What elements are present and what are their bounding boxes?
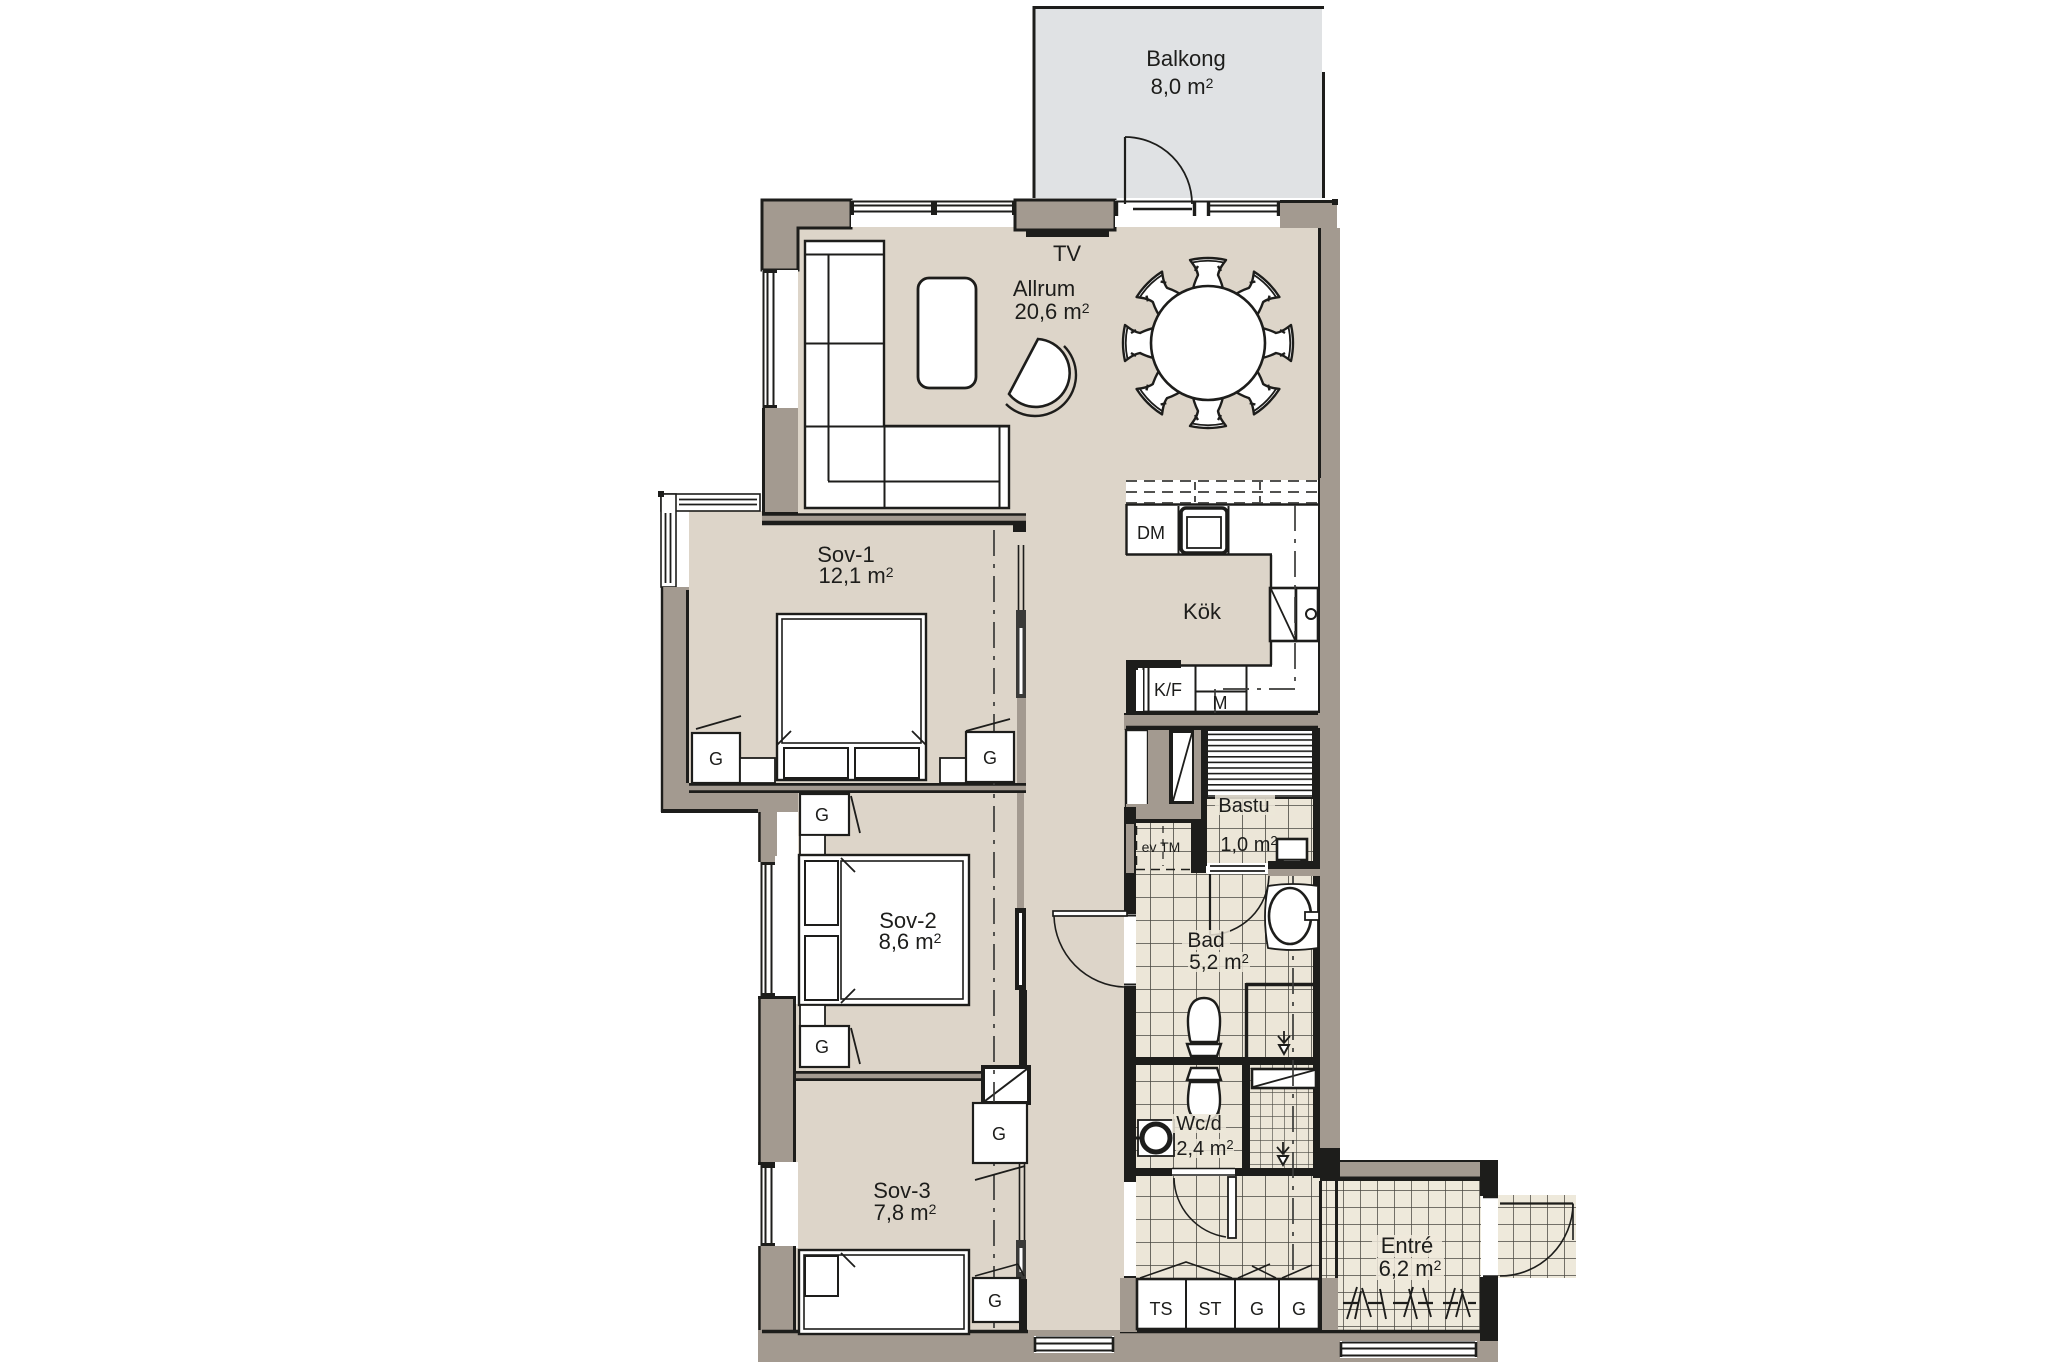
svg-text:G: G xyxy=(815,805,829,825)
svg-text:TV: TV xyxy=(1053,241,1081,266)
svg-text:DM: DM xyxy=(1137,523,1165,543)
svg-text:5,2 m2: 5,2 m2 xyxy=(1189,951,1249,974)
svg-text:Bastu: Bastu xyxy=(1218,795,1269,817)
svg-text:8,6 m2: 8,6 m2 xyxy=(879,929,942,954)
svg-text:6,2 m2: 6,2 m2 xyxy=(1379,1256,1442,1281)
svg-text:G: G xyxy=(988,1291,1002,1311)
svg-text:7,8 m2: 7,8 m2 xyxy=(874,1200,937,1225)
svg-text:Kök: Kök xyxy=(1183,599,1222,624)
svg-text:12,1 m2: 12,1 m2 xyxy=(818,563,893,588)
svg-text:8,0 m2: 8,0 m2 xyxy=(1151,74,1214,99)
svg-text:M: M xyxy=(1213,693,1228,713)
svg-text:ev TM: ev TM xyxy=(1142,839,1181,855)
svg-text:G: G xyxy=(992,1124,1006,1144)
svg-text:ST: ST xyxy=(1198,1299,1221,1319)
svg-text:G: G xyxy=(1250,1299,1264,1319)
svg-text:K/F: K/F xyxy=(1154,680,1182,700)
svg-text:G: G xyxy=(815,1037,829,1057)
svg-text:2,4 m2: 2,4 m2 xyxy=(1176,1137,1233,1160)
svg-text:1,0 m2: 1,0 m2 xyxy=(1220,833,1277,856)
svg-text:20,6 m2: 20,6 m2 xyxy=(1014,299,1089,324)
svg-text:G: G xyxy=(1292,1299,1306,1319)
svg-text:Wc/d: Wc/d xyxy=(1176,1113,1222,1135)
svg-text:Entré: Entré xyxy=(1381,1233,1434,1258)
svg-text:G: G xyxy=(983,748,997,768)
svg-text:Allrum: Allrum xyxy=(1013,276,1075,301)
svg-text:TS: TS xyxy=(1149,1299,1172,1319)
svg-text:Balkong: Balkong xyxy=(1146,46,1226,71)
svg-text:Bad: Bad xyxy=(1187,929,1224,952)
svg-text:G: G xyxy=(709,749,723,769)
